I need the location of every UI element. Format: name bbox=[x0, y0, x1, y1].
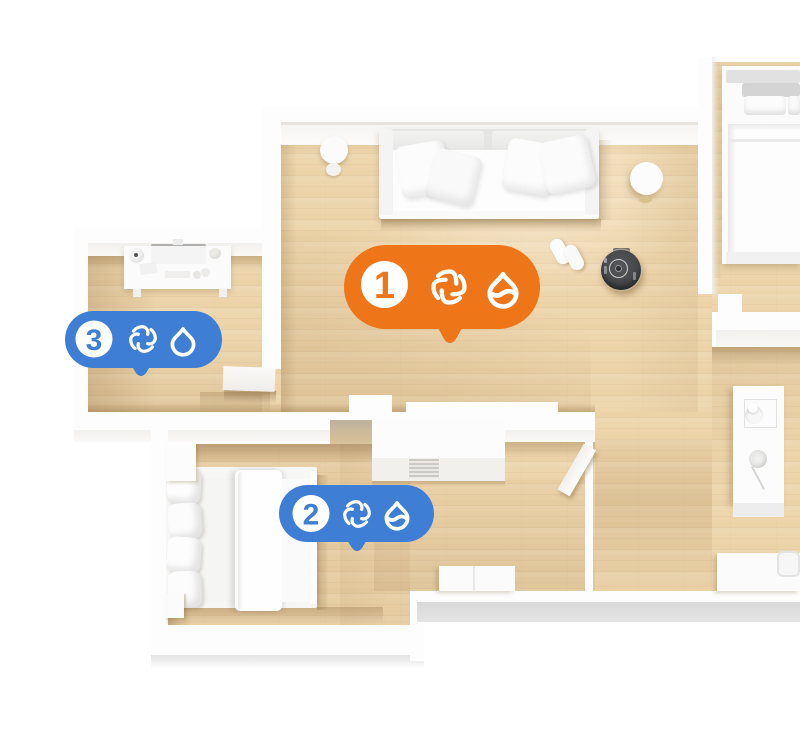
svg-text:3: 3 bbox=[86, 324, 103, 357]
svg-text:2: 2 bbox=[303, 499, 320, 532]
svg-text:1: 1 bbox=[374, 265, 395, 307]
